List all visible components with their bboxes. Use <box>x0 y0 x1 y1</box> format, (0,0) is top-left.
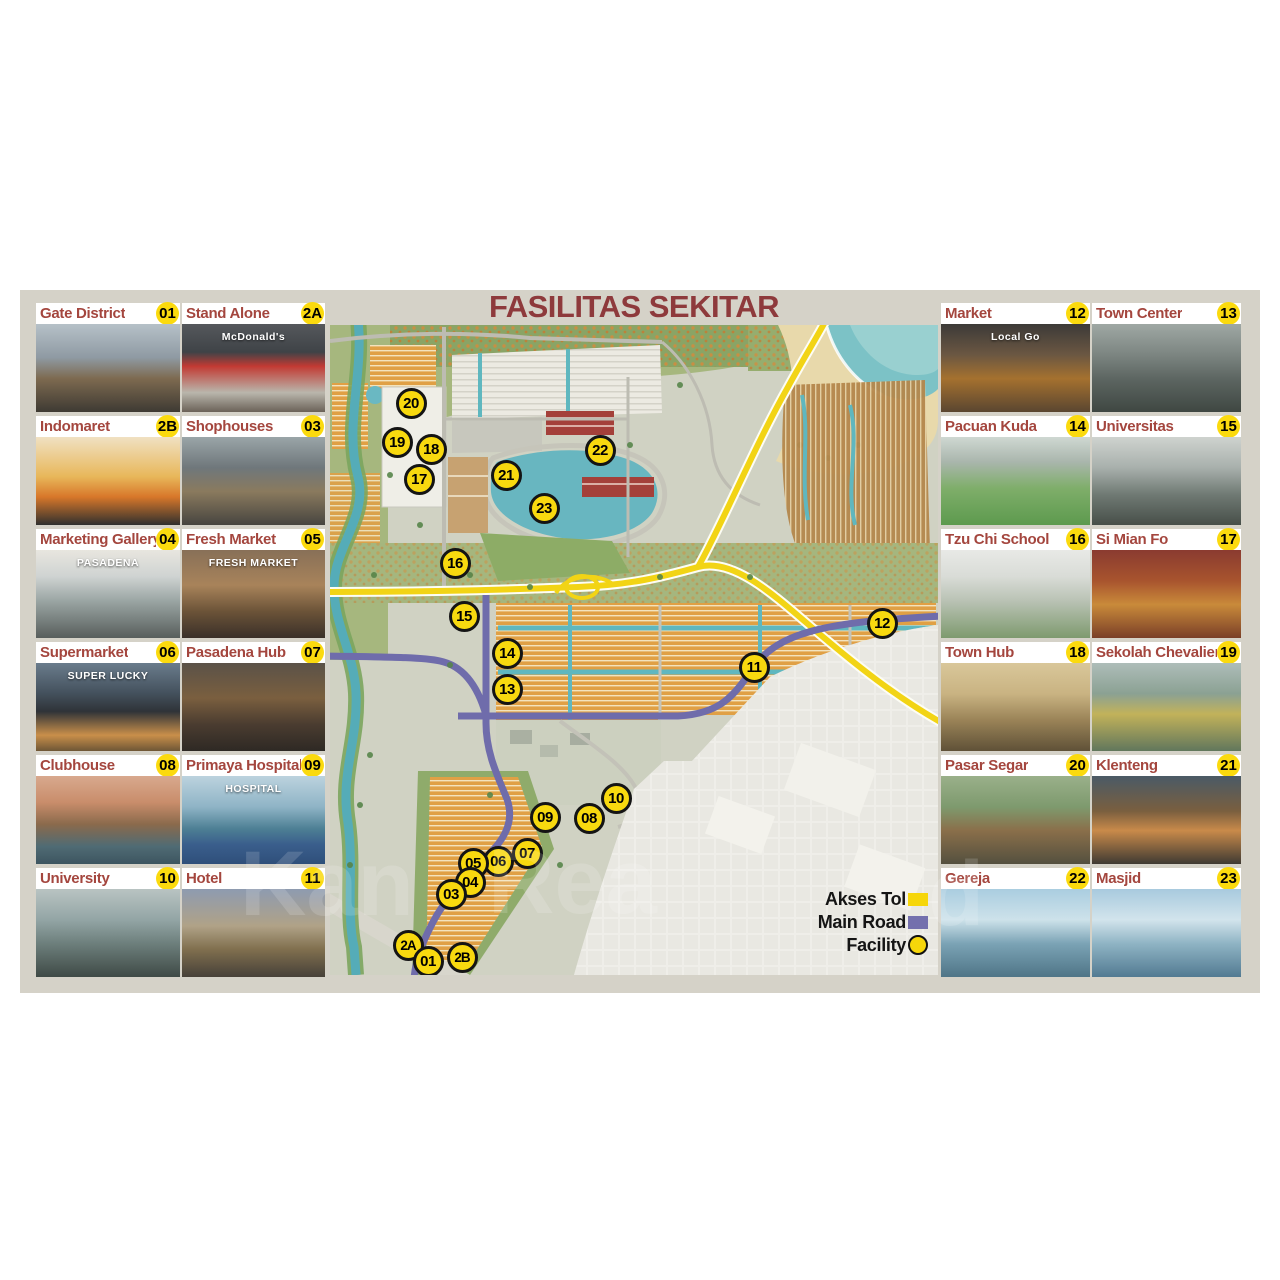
map-marker-20: 20 <box>396 388 427 419</box>
map-marker-12: 12 <box>867 608 898 639</box>
facility-photo: PASADENA <box>36 550 180 638</box>
facility-photo: McDonald's <box>182 324 325 412</box>
facility-label: Klenteng <box>1096 757 1158 774</box>
facility-label: Town Center <box>1096 305 1182 322</box>
poster-page: FASILITAS SEKITAR Gate District01Stand A… <box>0 0 1280 1280</box>
facility-label: Masjid <box>1096 870 1141 887</box>
facility-card-header: Pacuan Kuda14 <box>941 416 1090 437</box>
map-marker-19: 19 <box>382 427 413 458</box>
facility-number-badge: 05 <box>301 528 324 551</box>
legend-row: Facility <box>846 935 928 955</box>
masterplan-illustration <box>330 325 938 975</box>
map-marker-13: 13 <box>492 674 523 705</box>
facility-card: Masjid23 <box>1092 868 1241 977</box>
facility-number-badge: 13 <box>1217 302 1240 325</box>
facility-label: Pacuan Kuda <box>945 418 1037 435</box>
facility-label: Universitas <box>1096 418 1174 435</box>
facility-card: Indomaret2B <box>36 416 180 525</box>
facility-label: Gate District <box>40 305 125 322</box>
map-marker-15: 15 <box>449 601 480 632</box>
facility-number-badge: 2A <box>301 302 324 325</box>
facility-card-header: Fresh Market05 <box>182 529 325 550</box>
facility-card: Shophouses03 <box>182 416 325 525</box>
facility-number-badge: 01 <box>156 302 179 325</box>
facility-card-header: Supermarket06 <box>36 642 180 663</box>
map-marker-10: 10 <box>601 783 632 814</box>
legend-label: Main Road <box>818 912 906 933</box>
facility-label: Shophouses <box>186 418 273 435</box>
facility-card-header: Gereja22 <box>941 868 1090 889</box>
facility-number-badge: 08 <box>156 754 179 777</box>
facility-label: Hotel <box>186 870 222 887</box>
facility-card: Pasadena Hub07 <box>182 642 325 751</box>
facility-card-header: Pasar Segar20 <box>941 755 1090 776</box>
facility-label: Sekolah Chevalier <box>1096 644 1217 661</box>
facility-number-badge: 17 <box>1217 528 1240 551</box>
facility-photo <box>36 324 180 412</box>
facility-photo <box>1092 550 1241 638</box>
facility-label: Si Mian Fo <box>1096 531 1168 548</box>
facility-card-header: Clubhouse08 <box>36 755 180 776</box>
map-marker-08: 08 <box>574 803 605 834</box>
facility-card: Tzu Chi School16 <box>941 529 1090 638</box>
photo-signage-text: HOSPITAL <box>182 783 325 795</box>
facility-card-header: Si Mian Fo17 <box>1092 529 1241 550</box>
facility-photo <box>941 437 1090 525</box>
facility-photo: Local Go <box>941 324 1090 412</box>
legend-row: Akses Tol <box>825 889 928 909</box>
facility-card: Pacuan Kuda14 <box>941 416 1090 525</box>
map-marker-16: 16 <box>440 548 471 579</box>
facility-label: Tzu Chi School <box>945 531 1049 548</box>
facility-label: Pasar Segar <box>945 757 1028 774</box>
facility-card-header: Klenteng21 <box>1092 755 1241 776</box>
facility-number-badge: 09 <box>301 754 324 777</box>
facility-photo: HOSPITAL <box>182 776 325 864</box>
facility-card: Universitas15 <box>1092 416 1241 525</box>
facility-number-badge: 21 <box>1217 754 1240 777</box>
facility-card: Stand Alone2AMcDonald's <box>182 303 325 412</box>
facility-card: Fresh Market05FRESH MARKET <box>182 529 325 638</box>
facility-card-header: Town Hub18 <box>941 642 1090 663</box>
map-marker-14: 14 <box>492 638 523 669</box>
facility-card: Klenteng21 <box>1092 755 1241 864</box>
map-legend: Akses TolMain RoadFacility <box>818 889 928 955</box>
map-marker-07: 07 <box>512 838 543 869</box>
facility-photo <box>1092 324 1241 412</box>
facility-label: Market <box>945 305 992 322</box>
map-marker-09: 09 <box>530 802 561 833</box>
facility-card-header: Town Center13 <box>1092 303 1241 324</box>
facility-card: Pasar Segar20 <box>941 755 1090 864</box>
masterplan-map: Akses TolMain RoadFacility 2019181721222… <box>330 325 938 975</box>
facility-card: Market12Local Go <box>941 303 1090 412</box>
facility-photo <box>1092 663 1241 751</box>
map-marker-22: 22 <box>585 435 616 466</box>
facility-photo <box>1092 437 1241 525</box>
facility-card-header: Gate District01 <box>36 303 180 324</box>
facility-card: Si Mian Fo17 <box>1092 529 1241 638</box>
legend-swatch-rect <box>908 916 928 929</box>
facility-card-header: Marketing Gallery04 <box>36 529 180 550</box>
facility-card-header: Hotel11 <box>182 868 325 889</box>
facility-photo <box>182 889 325 977</box>
facility-photo <box>182 663 325 751</box>
facility-card: University10 <box>36 868 180 977</box>
facility-label: Marketing Gallery <box>40 531 156 548</box>
legend-swatch-circle <box>908 935 928 955</box>
facility-card: Sekolah Chevalier19 <box>1092 642 1241 751</box>
facility-number-badge: 12 <box>1066 302 1089 325</box>
facility-number-badge: 20 <box>1066 754 1089 777</box>
facility-card-header: Indomaret2B <box>36 416 180 437</box>
map-marker-11: 11 <box>739 652 770 683</box>
facility-card: Primaya Hospital09HOSPITAL <box>182 755 325 864</box>
facility-number-badge: 19 <box>1217 641 1240 664</box>
map-marker-23: 23 <box>529 493 560 524</box>
facility-label: Fresh Market <box>186 531 276 548</box>
facility-card-header: Pasadena Hub07 <box>182 642 325 663</box>
map-marker-03: 03 <box>436 879 467 910</box>
facility-number-badge: 2B <box>156 415 179 438</box>
facility-label: Primaya Hospital <box>186 757 301 774</box>
facility-label: University <box>40 870 110 887</box>
facility-card-header: Tzu Chi School16 <box>941 529 1090 550</box>
facility-number-badge: 15 <box>1217 415 1240 438</box>
facility-label: Stand Alone <box>186 305 270 322</box>
photo-signage-text: FRESH MARKET <box>182 557 325 569</box>
legend-swatch-rect <box>908 893 928 906</box>
facility-photo <box>182 437 325 525</box>
facility-label: Pasadena Hub <box>186 644 286 661</box>
facility-number-badge: 23 <box>1217 867 1240 890</box>
legend-label: Akses Tol <box>825 889 906 910</box>
facility-label: Gereja <box>945 870 990 887</box>
facility-card-header: Universitas15 <box>1092 416 1241 437</box>
facility-card: Hotel11 <box>182 868 325 977</box>
facility-photo <box>36 889 180 977</box>
facility-number-badge: 04 <box>156 528 179 551</box>
facility-list-right: Market12Local GoTown Center13Pacuan Kuda… <box>941 303 1241 981</box>
facility-number-badge: 18 <box>1066 641 1089 664</box>
photo-signage-text: McDonald's <box>182 331 325 343</box>
facility-label: Indomaret <box>40 418 110 435</box>
facility-card-header: Sekolah Chevalier19 <box>1092 642 1241 663</box>
facility-label: Clubhouse <box>40 757 115 774</box>
facility-card: Supermarket06SUPER LUCKY <box>36 642 180 751</box>
facility-card: Town Hub18 <box>941 642 1090 751</box>
page-title: FASILITAS SEKITAR <box>330 291 938 324</box>
facility-photo <box>941 663 1090 751</box>
facility-photo <box>941 776 1090 864</box>
facility-number-badge: 16 <box>1066 528 1089 551</box>
facility-card: Gereja22 <box>941 868 1090 977</box>
facility-number-badge: 07 <box>301 641 324 664</box>
facility-photo: SUPER LUCKY <box>36 663 180 751</box>
facility-card-header: Stand Alone2A <box>182 303 325 324</box>
facility-card: Marketing Gallery04PASADENA <box>36 529 180 638</box>
facility-photo: FRESH MARKET <box>182 550 325 638</box>
facility-card: Gate District01 <box>36 303 180 412</box>
facility-number-badge: 11 <box>301 867 324 890</box>
map-marker-2B: 2B <box>447 942 478 973</box>
facility-card-header: Primaya Hospital09 <box>182 755 325 776</box>
photo-signage-text: SUPER LUCKY <box>36 670 180 682</box>
legend-label: Facility <box>846 935 906 956</box>
facility-number-badge: 22 <box>1066 867 1089 890</box>
facility-card-header: Market12 <box>941 303 1090 324</box>
facility-card: Town Center13 <box>1092 303 1241 412</box>
map-marker-01: 01 <box>413 946 444 976</box>
facility-card-header: University10 <box>36 868 180 889</box>
facility-label: Town Hub <box>945 644 1014 661</box>
facility-card-header: Shophouses03 <box>182 416 325 437</box>
facility-label: Supermarket <box>40 644 128 661</box>
facility-number-badge: 06 <box>156 641 179 664</box>
facility-photo <box>36 776 180 864</box>
facility-photo <box>36 437 180 525</box>
facility-photo <box>1092 776 1241 864</box>
photo-signage-text: PASADENA <box>36 557 180 569</box>
facility-number-badge: 14 <box>1066 415 1089 438</box>
legend-row: Main Road <box>818 912 928 932</box>
photo-signage-text: Local Go <box>941 331 1090 343</box>
facility-photo <box>1092 889 1241 977</box>
facility-number-badge: 03 <box>301 415 324 438</box>
map-marker-18: 18 <box>416 434 447 465</box>
map-marker-21: 21 <box>491 460 522 491</box>
facility-card-header: Masjid23 <box>1092 868 1241 889</box>
facility-list-left: Gate District01Stand Alone2AMcDonald'sIn… <box>36 303 325 981</box>
map-marker-17: 17 <box>404 464 435 495</box>
facility-number-badge: 10 <box>156 867 179 890</box>
facility-photo <box>941 889 1090 977</box>
facility-photo <box>941 550 1090 638</box>
facility-card: Clubhouse08 <box>36 755 180 864</box>
